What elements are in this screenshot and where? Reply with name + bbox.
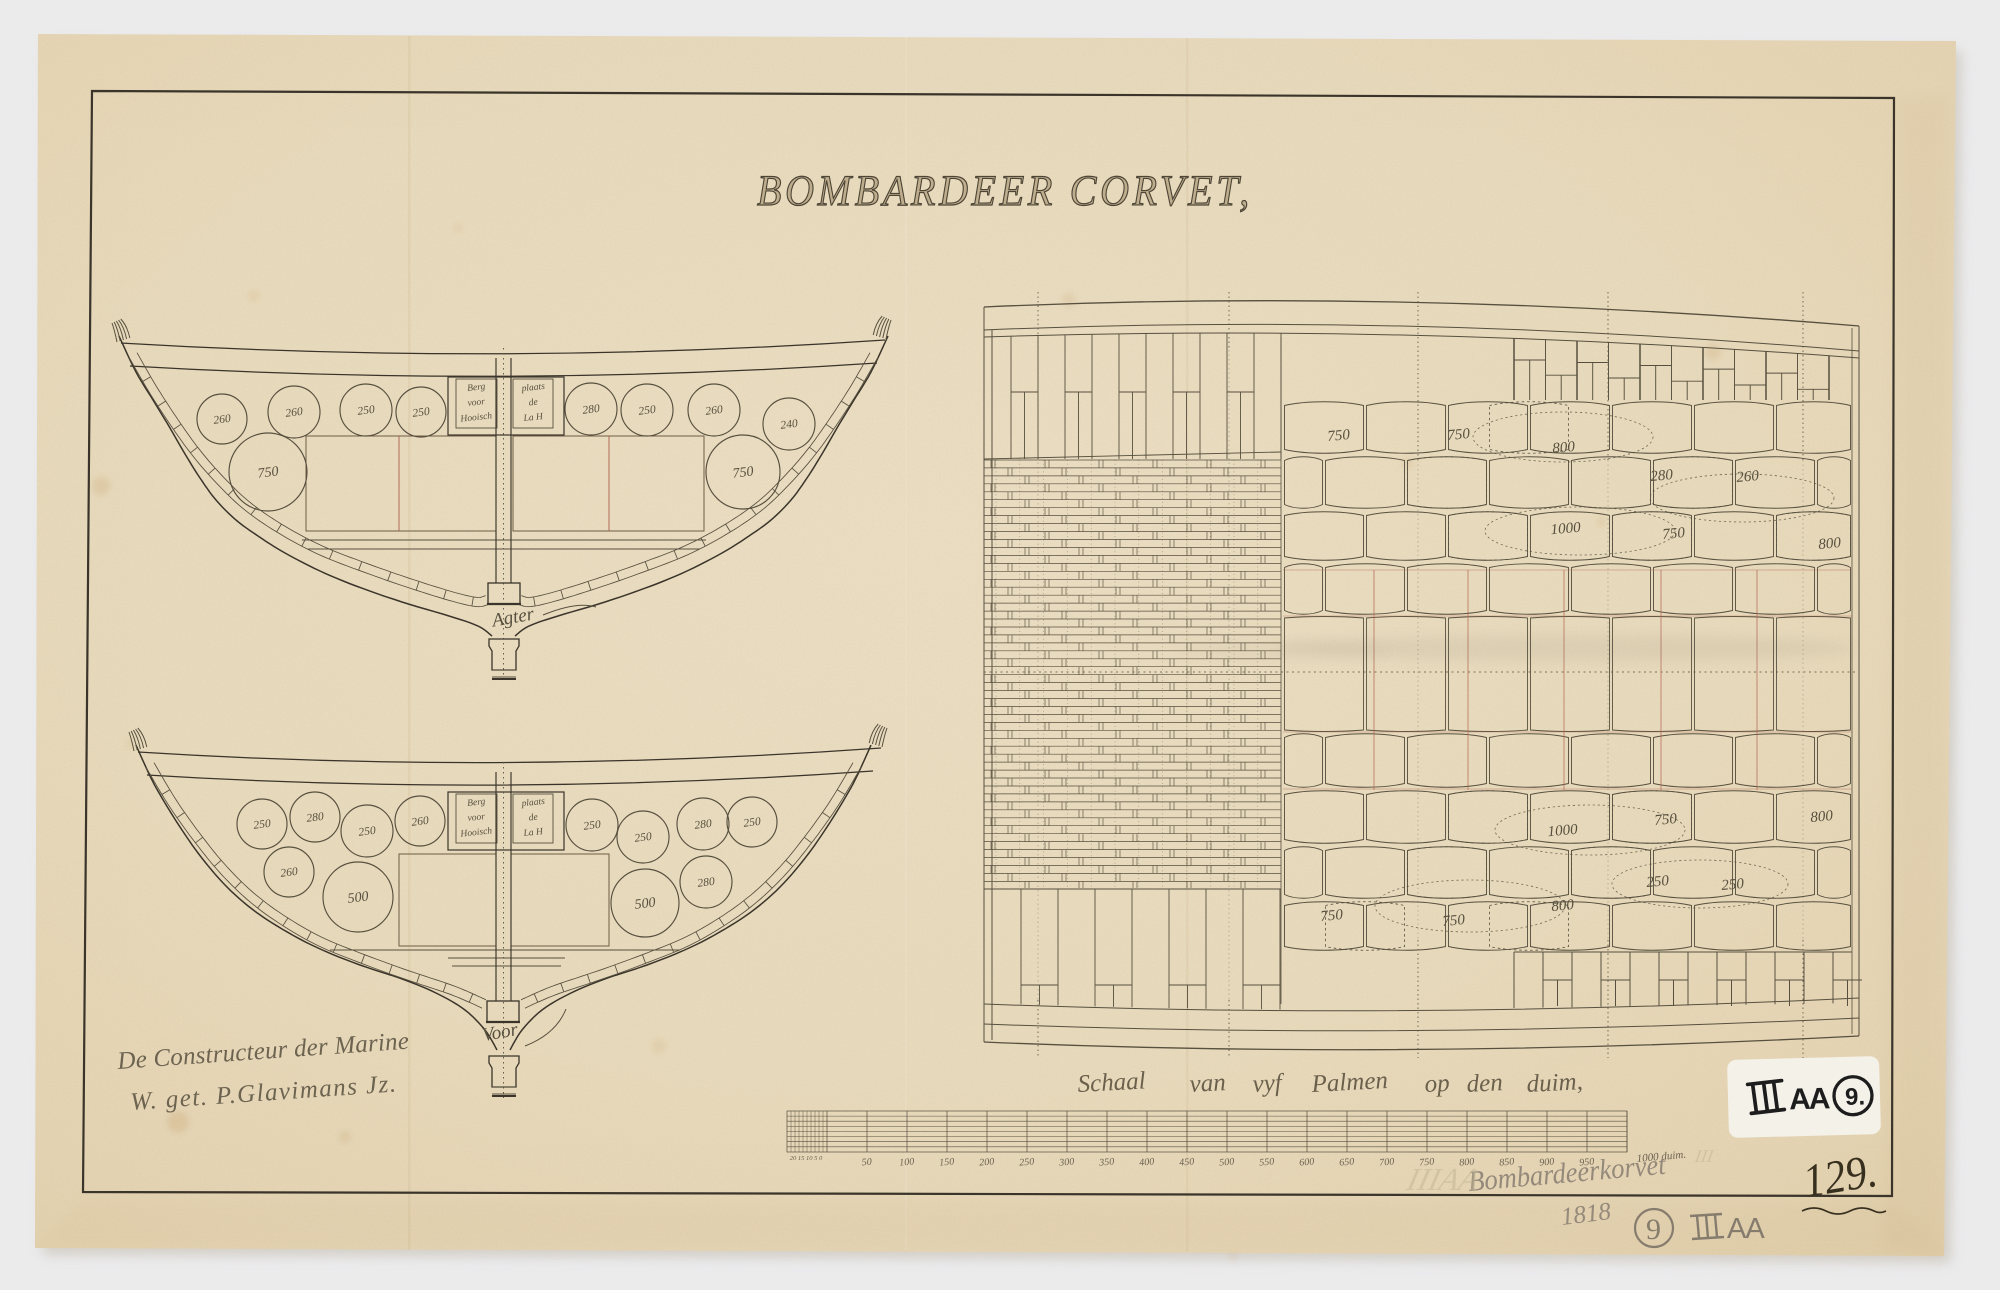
svg-text:250: 250 (412, 406, 431, 420)
svg-text:800: 800 (1818, 535, 1842, 553)
svg-text:voor: voor (467, 812, 486, 824)
svg-text:280: 280 (1650, 467, 1674, 485)
svg-text:de: de (528, 813, 538, 824)
svg-text:260: 260 (280, 866, 299, 880)
svg-text:AA: AA (1727, 1213, 1765, 1245)
svg-text:750: 750 (1654, 811, 1678, 829)
svg-text:280: 280 (697, 876, 716, 890)
svg-text:750: 750 (1662, 525, 1686, 543)
svg-text:750: 750 (1320, 907, 1344, 925)
svg-text:1000: 1000 (1550, 520, 1582, 539)
svg-text:280: 280 (694, 818, 713, 832)
svg-text:260: 260 (411, 815, 430, 829)
svg-text:250: 250 (1646, 873, 1670, 891)
svg-text:260: 260 (1736, 468, 1760, 486)
svg-text:250: 250 (358, 825, 377, 839)
svg-text:260: 260 (285, 406, 304, 420)
svg-text:200: 200 (979, 1156, 995, 1168)
svg-text:280: 280 (582, 403, 601, 417)
svg-text:800: 800 (1551, 897, 1575, 915)
svg-text:500: 500 (1219, 1156, 1235, 1168)
svg-text:250: 250 (1721, 876, 1745, 894)
svg-text:750: 750 (257, 464, 280, 481)
svg-text:750: 750 (732, 464, 755, 481)
svg-text:150: 150 (939, 1156, 955, 1168)
svg-text:van: van (1189, 1069, 1226, 1098)
svg-text:750: 750 (1442, 912, 1466, 930)
svg-text:BOMBARDEER CORVET,: BOMBARDEER CORVET, (757, 168, 1253, 215)
svg-text:50: 50 (861, 1157, 872, 1169)
svg-text:750: 750 (1447, 426, 1471, 444)
svg-text:400: 400 (1139, 1156, 1155, 1168)
svg-text:650: 650 (1339, 1156, 1355, 1168)
svg-text:de: de (528, 398, 538, 409)
svg-text:Berg: Berg (467, 797, 486, 809)
svg-text:800: 800 (1810, 808, 1834, 826)
svg-text:250: 250 (1019, 1156, 1035, 1168)
svg-text:280: 280 (306, 811, 325, 825)
svg-text:260: 260 (705, 404, 724, 418)
svg-text:100: 100 (899, 1156, 915, 1168)
svg-text:9: 9 (1646, 1213, 1661, 1246)
svg-text:den: den (1466, 1069, 1503, 1098)
svg-text:9.: 9. (1845, 1083, 1866, 1111)
svg-text:op: op (1424, 1070, 1450, 1098)
svg-text:250: 250 (638, 404, 657, 418)
svg-text:240: 240 (780, 418, 799, 432)
svg-text:500: 500 (634, 895, 657, 912)
svg-text:250: 250 (253, 818, 272, 832)
svg-text:vyf: vyf (1252, 1069, 1286, 1098)
svg-text:voor: voor (467, 397, 486, 409)
svg-text:260: 260 (213, 413, 232, 427)
svg-text:250: 250 (357, 404, 376, 418)
svg-text:350: 350 (1098, 1156, 1115, 1168)
svg-text:550: 550 (1259, 1156, 1275, 1168)
svg-text:AA: AA (1789, 1082, 1831, 1116)
svg-text:1000: 1000 (1547, 822, 1579, 841)
svg-text:700: 700 (1379, 1156, 1395, 1168)
svg-text:250: 250 (583, 819, 602, 833)
svg-text:250: 250 (743, 816, 762, 830)
svg-text:450: 450 (1179, 1156, 1195, 1168)
svg-text:500: 500 (347, 889, 370, 906)
svg-text:800: 800 (1552, 439, 1576, 457)
svg-text:300: 300 (1058, 1156, 1075, 1168)
svg-text:Berg: Berg (467, 382, 486, 394)
svg-text:20 15 10 5 0: 20 15 10 5 0 (790, 1155, 823, 1162)
svg-text:600: 600 (1299, 1156, 1315, 1168)
svg-text:duim,: duim, (1526, 1068, 1584, 1098)
svg-text:Palmen: Palmen (1310, 1067, 1389, 1098)
svg-text:IIIAA: IIIAA (1402, 1162, 1483, 1197)
svg-text:750: 750 (1327, 427, 1351, 445)
svg-text:Schaal: Schaal (1077, 1067, 1146, 1098)
svg-text:250: 250 (634, 831, 653, 845)
